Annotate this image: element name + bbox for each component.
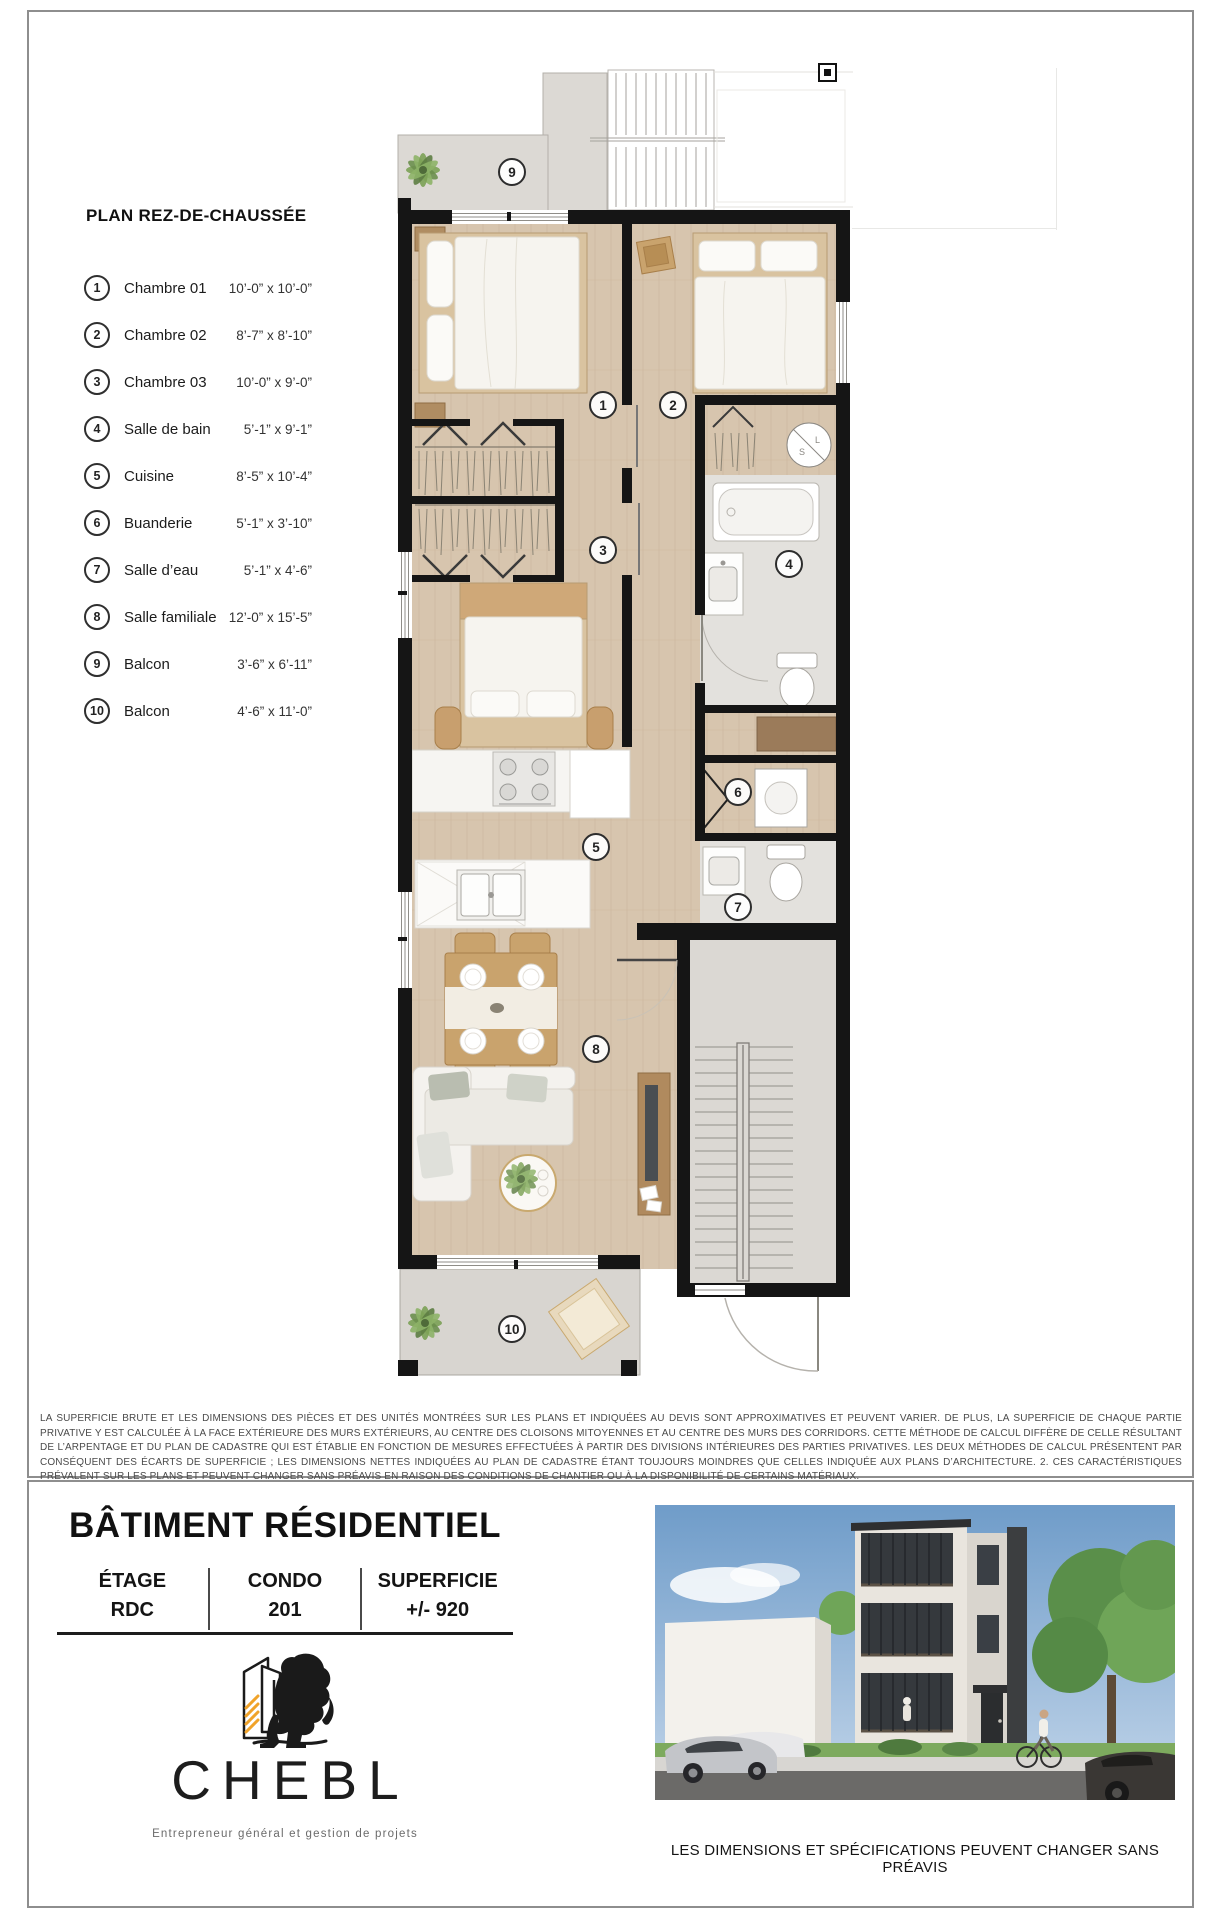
bench — [636, 236, 675, 273]
car — [1085, 1752, 1175, 1800]
exterior-stairs — [590, 70, 853, 210]
legend-item: 9Balcon3’-6” x 6’-11” — [84, 651, 312, 677]
legend-item: 7Salle d’eau5’-1” x 4’-6” — [84, 557, 312, 583]
plan-room-number: 10 — [498, 1315, 526, 1343]
floor-plan-drawing: L S — [395, 55, 855, 1400]
legal-disclaimer: LA SUPERFICIE BRUTE ET LES DIMENSIONS DE… — [40, 1412, 1182, 1485]
bathroom-vanity — [703, 553, 743, 615]
plan-room-number: 7 — [724, 893, 752, 921]
plan-room-number: 3 — [589, 536, 617, 564]
spec-label: SUPERFICIE — [362, 1570, 513, 1593]
legend-item: 8Salle familiale12’-0” x 15’-5” — [84, 604, 312, 630]
legend-item: 4Salle de bain5’-1” x 9’-1” — [84, 416, 312, 442]
floor-plan-document: { "page": { "legend_title": "PLAN REZ-DE… — [0, 0, 1221, 1920]
toilet — [777, 653, 817, 708]
legend-item: 5Cuisine8’-5” x 10’-4” — [84, 463, 312, 489]
photo-caption: LES DIMENSIONS ET SPÉCIFICATIONS PEUVENT… — [640, 1842, 1190, 1876]
landing-area — [543, 73, 607, 213]
room-number-badge: 1 — [84, 275, 110, 301]
plan-room-number: 2 — [659, 391, 687, 419]
legend-item: 6Buanderie5’-1” x 3’-10” — [84, 510, 312, 536]
spec-value: +/- 920 — [362, 1599, 513, 1622]
room-dimensions: 5’-1” x 9’-1” — [244, 422, 312, 437]
room-name: Balcon — [124, 703, 170, 720]
room-number-badge: 2 — [84, 322, 110, 348]
legend-item: 3Chambre 0310’-0” x 9’-0” — [84, 369, 312, 395]
room-name: Chambre 01 — [124, 280, 207, 297]
room-dimensions: 10’-0” x 9’-0” — [236, 375, 312, 390]
room-dimensions: 8’-5” x 10’-4” — [236, 469, 312, 484]
neighbor-outline — [1056, 68, 1057, 230]
room-dimensions: 4’-6” x 11’-0” — [237, 704, 312, 719]
dining-table — [445, 933, 557, 1085]
kitchen-counter — [412, 750, 630, 818]
entry-door — [695, 1285, 818, 1371]
spec-column: SUPERFICIE+/- 920 — [362, 1568, 513, 1630]
spec-column: CONDO201 — [208, 1568, 363, 1630]
room-number-badge: 4 — [84, 416, 110, 442]
tv-console — [638, 1073, 670, 1215]
plan-room-number: 9 — [498, 158, 526, 186]
room-name: Salle de bain — [124, 421, 211, 438]
chebl-logo-icon — [230, 1646, 342, 1750]
laundry-machine — [755, 769, 807, 827]
building-photo — [655, 1505, 1175, 1800]
room-dimensions: 10’-0” x 10’-0” — [229, 281, 312, 296]
spec-label: ÉTAGE — [57, 1570, 208, 1593]
plan-room-number: 5 — [582, 833, 610, 861]
room-number-badge: 6 — [84, 510, 110, 536]
plan-room-number: 4 — [775, 550, 803, 578]
legend-item: 1Chambre 0110’-0” x 10’-0” — [84, 275, 312, 301]
page-title: PLAN REZ-DE-CHAUSSÉE — [86, 206, 306, 226]
plan-room-number: 8 — [582, 1035, 610, 1063]
spec-label: CONDO — [210, 1570, 361, 1593]
chebl-logo-wordmark: CHEBL — [57, 1748, 513, 1812]
room-dimensions: 3’-6” x 6’-11” — [237, 657, 312, 672]
room-number-badge: 5 — [84, 463, 110, 489]
spec-value: 201 — [210, 1599, 361, 1622]
bathtub — [713, 483, 819, 541]
room-name: Buanderie — [124, 515, 192, 532]
room-name: Salle d’eau — [124, 562, 198, 579]
column-marker — [819, 64, 836, 81]
plan-room-number: 6 — [724, 778, 752, 806]
room-name: Chambre 03 — [124, 374, 207, 391]
legend-item: 10Balcon4’-6” x 11’-0” — [84, 698, 312, 724]
room-legend: 1Chambre 0110’-0” x 10’-0”2Chambre 028’-… — [84, 275, 312, 745]
bed-chambre-02 — [693, 233, 827, 393]
room-number-badge: 8 — [84, 604, 110, 630]
room-name: Chambre 02 — [124, 327, 207, 344]
spec-table: ÉTAGERDCCONDO201SUPERFICIE+/- 920 — [57, 1568, 513, 1630]
legend-item: 2Chambre 028’-7” x 8’-10” — [84, 322, 312, 348]
coffee-table — [500, 1155, 556, 1211]
room-number-badge: 10 — [84, 698, 110, 724]
room-number-badge: 3 — [84, 369, 110, 395]
plan-room-number: 1 — [589, 391, 617, 419]
kitchen-island — [415, 860, 590, 928]
bed-chambre-03 — [435, 583, 613, 749]
room-dimensions: 5’-1” x 3’-10” — [236, 516, 312, 531]
neighbor-outline — [852, 228, 1057, 229]
svg-text:S: S — [799, 447, 805, 457]
chebl-logo-tagline: Entrepreneur général et gestion de proje… — [57, 1828, 513, 1840]
room-dimensions: 12’-0” x 15’-5” — [229, 610, 312, 625]
building-title: BÂTIMENT RÉSIDENTIEL — [57, 1506, 513, 1546]
room-number-badge: 7 — [84, 557, 110, 583]
wood-bench — [757, 717, 836, 751]
room-number-badge: 9 — [84, 651, 110, 677]
room-dimensions: 8’-7” x 8’-10” — [236, 328, 312, 343]
room-name: Balcon — [124, 656, 170, 673]
spec-column: ÉTAGERDC — [57, 1568, 208, 1630]
room-dimensions: 5’-1” x 4’-6” — [244, 563, 312, 578]
room-name: Salle familiale — [124, 609, 217, 626]
divider-rule — [57, 1632, 513, 1635]
upper-floor-ghost — [717, 90, 845, 202]
spec-value: RDC — [57, 1599, 208, 1622]
svg-text:L: L — [815, 435, 820, 445]
room-name: Cuisine — [124, 468, 174, 485]
wc-toilet — [767, 845, 805, 901]
wc-vanity — [703, 847, 745, 895]
